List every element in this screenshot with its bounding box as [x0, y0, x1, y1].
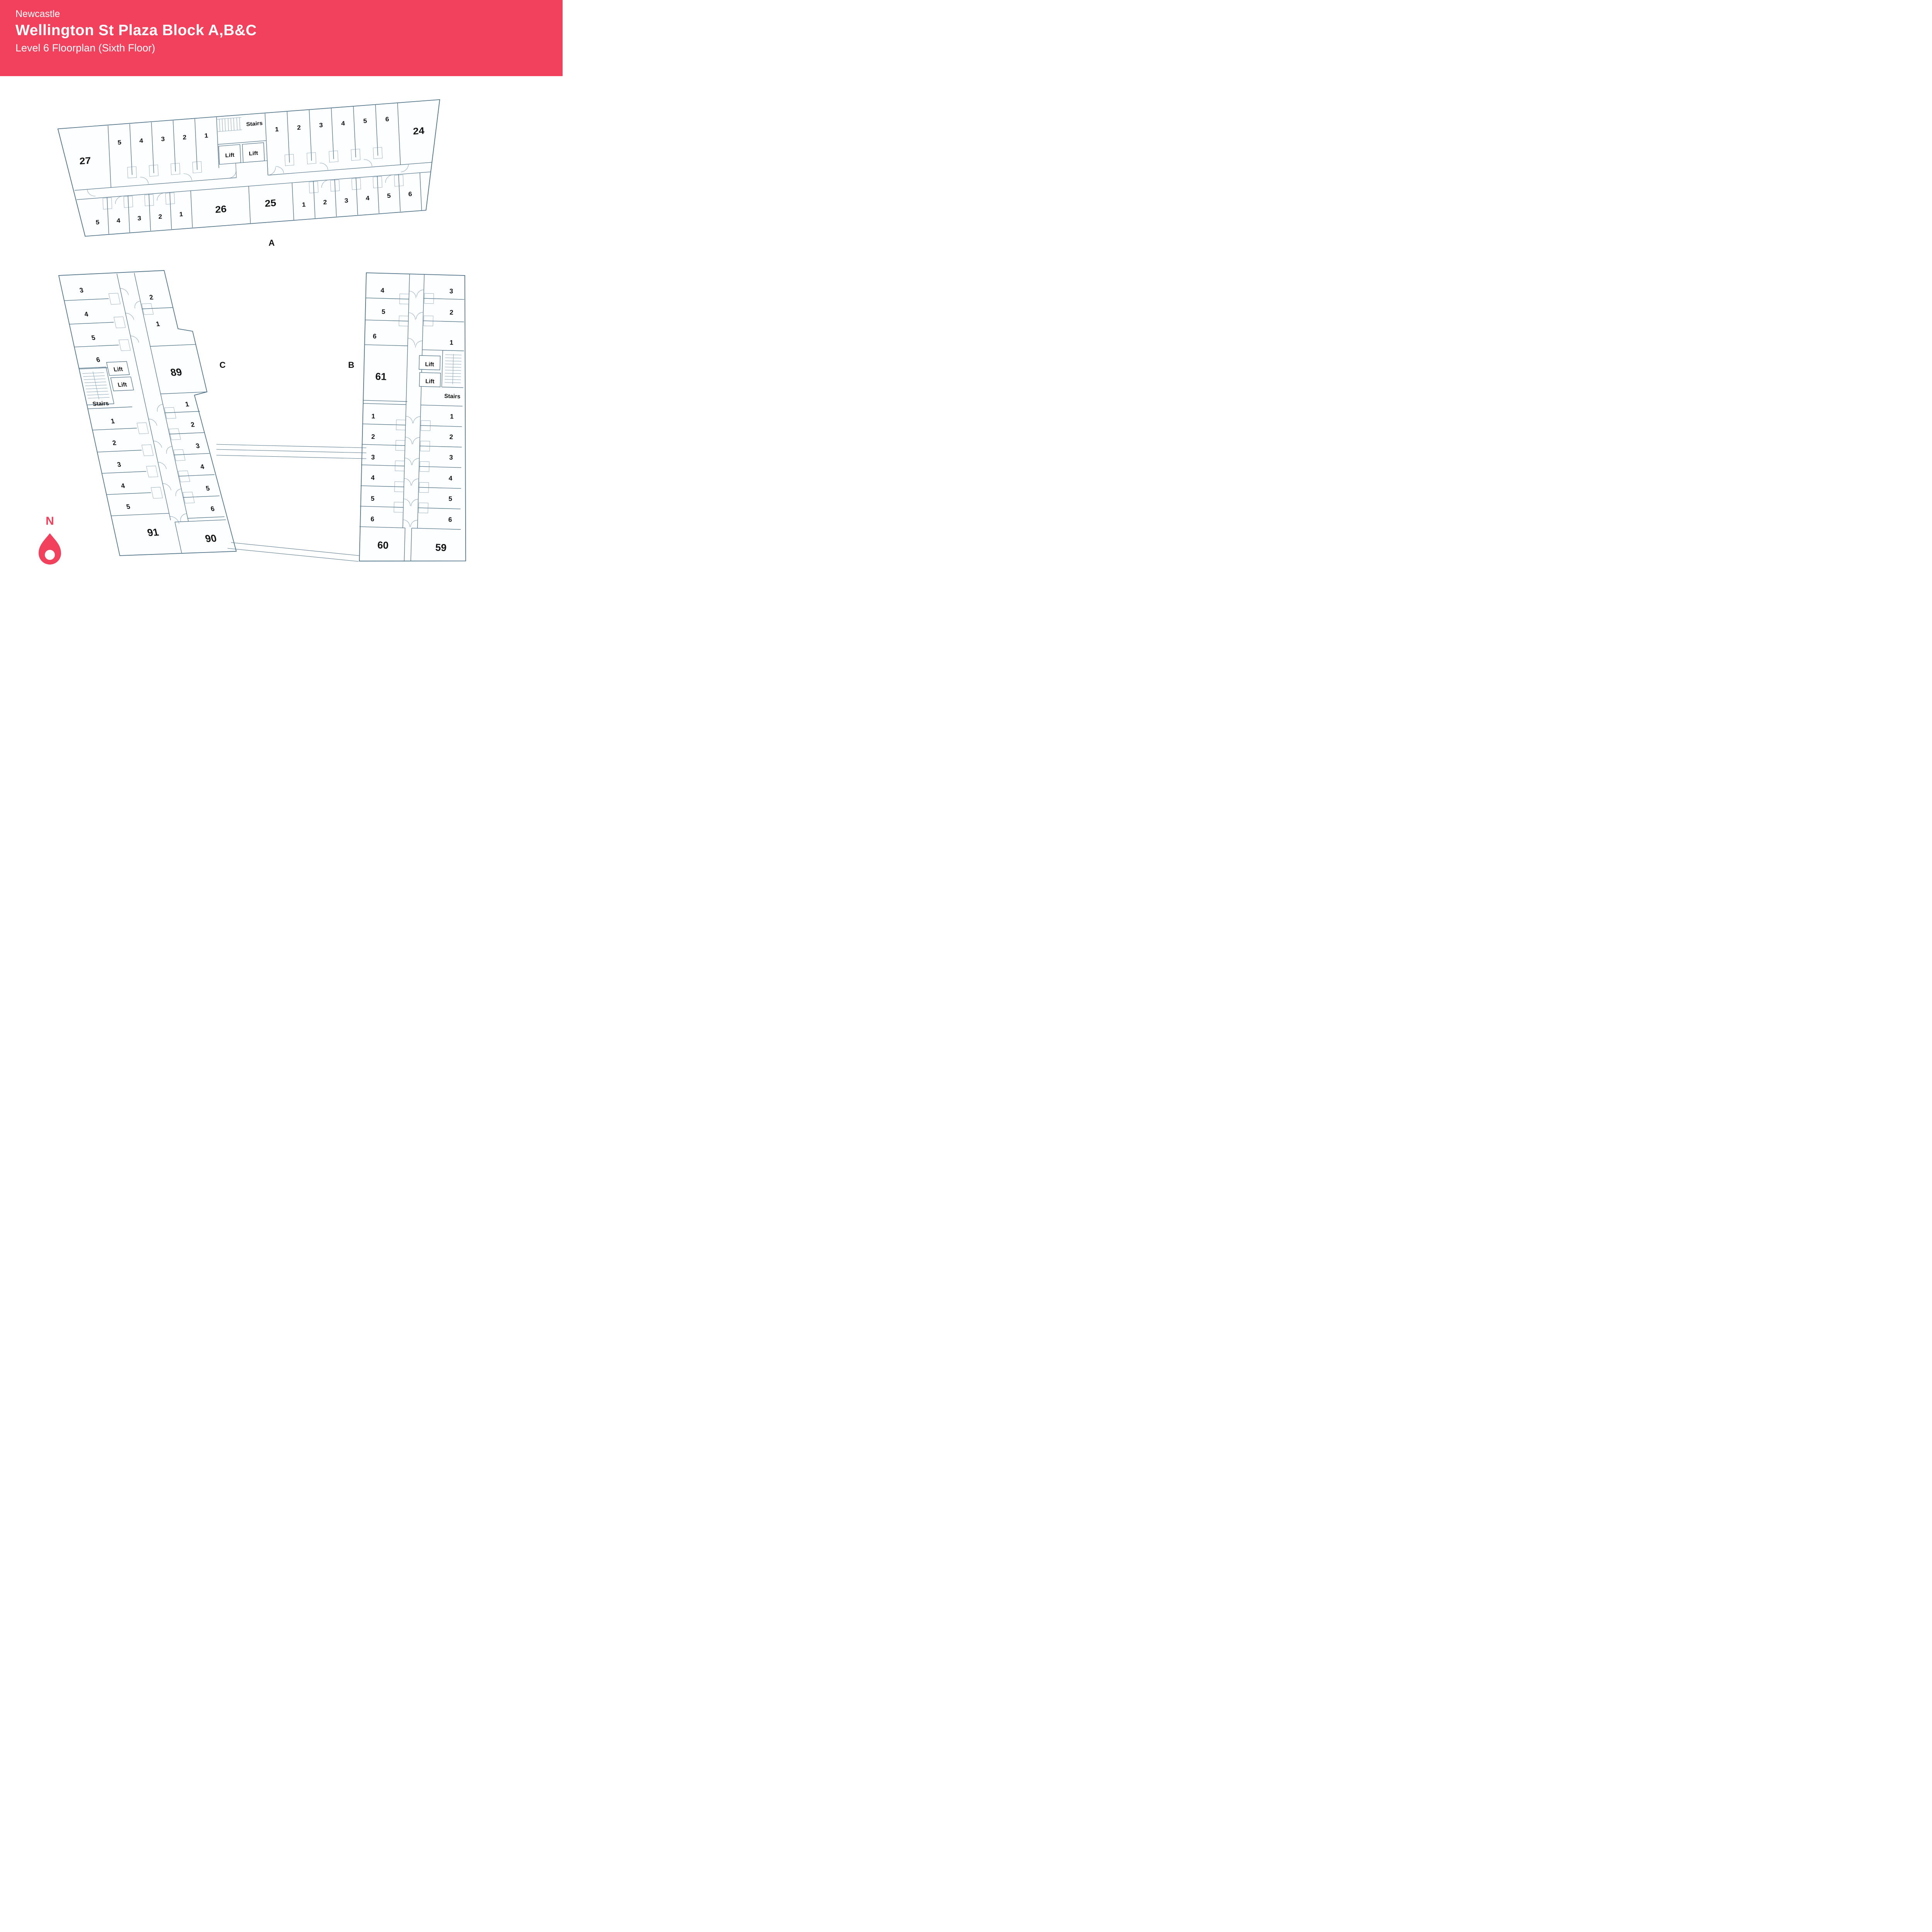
room-label: 60: [377, 539, 389, 551]
room-label: 2: [182, 134, 187, 141]
room-label: 5: [95, 219, 100, 226]
north-label: N: [46, 515, 54, 527]
block-letter-c: C: [219, 360, 226, 370]
block-letter-b: B: [348, 360, 354, 370]
room-label: 1: [204, 132, 209, 139]
room-label: 4: [449, 474, 453, 482]
room-label: 5: [449, 495, 452, 502]
room-label: 4: [366, 194, 370, 202]
room-label: 2: [449, 433, 453, 440]
room-label: 3: [371, 454, 375, 461]
room-label: 3: [319, 121, 323, 129]
room-label: 4: [341, 120, 345, 127]
room-label: 3: [161, 135, 165, 143]
walkway-upper: [216, 444, 366, 459]
room-label: 5: [381, 308, 385, 315]
room-label: 4: [116, 217, 121, 224]
room-label: 2: [158, 213, 162, 220]
room-label: 2: [297, 124, 301, 131]
floorplan-page: Newcastle Wellington St Plaza Block A,B&…: [0, 0, 563, 617]
block-b: 4 5 6 3 2 1 61 Lift Lift Stairs 1 2 3 4 …: [359, 273, 473, 564]
room-label: 4: [381, 287, 385, 294]
lift-label: Lift: [225, 152, 235, 159]
room-label: 6: [448, 516, 452, 523]
lift-label: Lift: [425, 378, 435, 385]
room-label: 6: [373, 333, 377, 340]
lift-label: Lift: [249, 150, 259, 157]
room-label: 1: [302, 201, 306, 208]
room-label: 5: [371, 495, 374, 502]
room-label: 26: [215, 204, 227, 215]
room-label: 27: [79, 155, 91, 167]
room-label: 6: [408, 190, 412, 198]
walkway-lower: [228, 543, 359, 561]
room-label: 6: [371, 515, 374, 523]
room-label: 5: [117, 139, 122, 146]
room-label: 3: [449, 454, 453, 461]
room-label: 24: [413, 126, 425, 137]
room-label: 2: [323, 199, 327, 206]
lift-label: Lift: [117, 381, 128, 388]
north-pin-hole: [45, 550, 55, 560]
room-label: 1: [449, 339, 453, 346]
room-label: 5: [387, 192, 391, 199]
room-label: 1: [371, 413, 375, 420]
room-label: 3: [137, 214, 141, 222]
room-label: 2: [449, 309, 453, 316]
room-label: 4: [139, 137, 143, 145]
room-label: 4: [371, 474, 375, 481]
room-label: 1: [179, 211, 183, 218]
room-label: 1: [275, 126, 279, 133]
block-c: 3 4 5 6 2 1 89 Lift Lift Stairs 1 2 3 4 …: [59, 270, 242, 556]
block-letter-a: A: [269, 238, 275, 248]
room-label: 1: [450, 413, 454, 420]
room-label: 61: [375, 371, 387, 383]
lift-label: Lift: [113, 366, 123, 373]
room-label: 3: [344, 197, 349, 204]
stairs-label: Stairs: [92, 400, 109, 408]
room-label: 3: [449, 287, 453, 295]
room-label: 2: [371, 433, 375, 440]
room-label: 5: [363, 117, 367, 125]
room-label: 25: [265, 198, 277, 209]
room-label: 6: [385, 116, 389, 123]
floorplan-canvas: 27 5 4 3 2 1 Stairs Lift Lift 1 2 3 4 5 …: [0, 0, 563, 617]
room-label: 59: [435, 541, 447, 553]
block-a: 27 5 4 3 2 1 Stairs Lift Lift 1 2 3 4 5 …: [58, 99, 445, 239]
stairs-label: Stairs: [444, 393, 461, 400]
north-indicator: N: [39, 515, 61, 565]
lift-label: Lift: [425, 361, 434, 368]
